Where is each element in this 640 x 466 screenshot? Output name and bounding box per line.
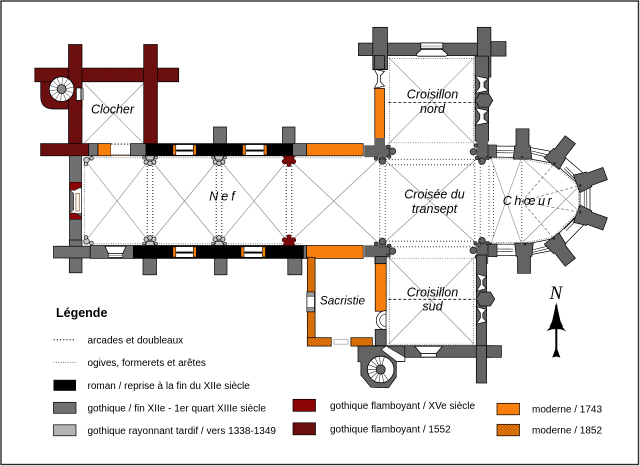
svg-text:gothique flamboyant / 1552: gothique flamboyant / 1552 xyxy=(330,425,451,436)
svg-text:gothique rayonnant tardif / ve: gothique rayonnant tardif / vers 1338-13… xyxy=(88,426,277,437)
svg-text:arcades et doubleaux: arcades et doubleaux xyxy=(88,336,184,347)
svg-text:Chœur: Chœur xyxy=(503,194,554,208)
svg-text:N: N xyxy=(549,283,564,304)
svg-text:Sacristie: Sacristie xyxy=(320,294,366,308)
svg-text:gothique / fin XIIe - 1er qua: gothique / fin XIIe - 1er quart XIIIe si… xyxy=(88,404,267,415)
svg-text:roman / reprise à la fin du XI: roman / reprise à la fin du XIIe siècle xyxy=(88,381,251,392)
svg-text:Croisillon: Croisillon xyxy=(407,285,458,299)
svg-text:moderne / 1852: moderne / 1852 xyxy=(532,426,602,437)
svg-text:Croisée du: Croisée du xyxy=(404,187,464,201)
svg-text:sud: sud xyxy=(422,300,443,314)
svg-text:transept: transept xyxy=(412,202,458,216)
svg-text:Nef: Nef xyxy=(209,190,237,204)
svg-text:nord: nord xyxy=(420,102,446,116)
svg-text:Légende: Légende xyxy=(56,306,107,320)
svg-text:moderne / 1743: moderne / 1743 xyxy=(532,405,602,416)
svg-text:ogives, formerets et arêtes: ogives, formerets et arêtes xyxy=(88,358,206,369)
svg-text:Croisillon: Croisillon xyxy=(407,88,458,102)
svg-text:gothique flamboyant / XVe sièc: gothique flamboyant / XVe siècle xyxy=(330,401,476,412)
svg-text:Clocher: Clocher xyxy=(91,103,135,117)
